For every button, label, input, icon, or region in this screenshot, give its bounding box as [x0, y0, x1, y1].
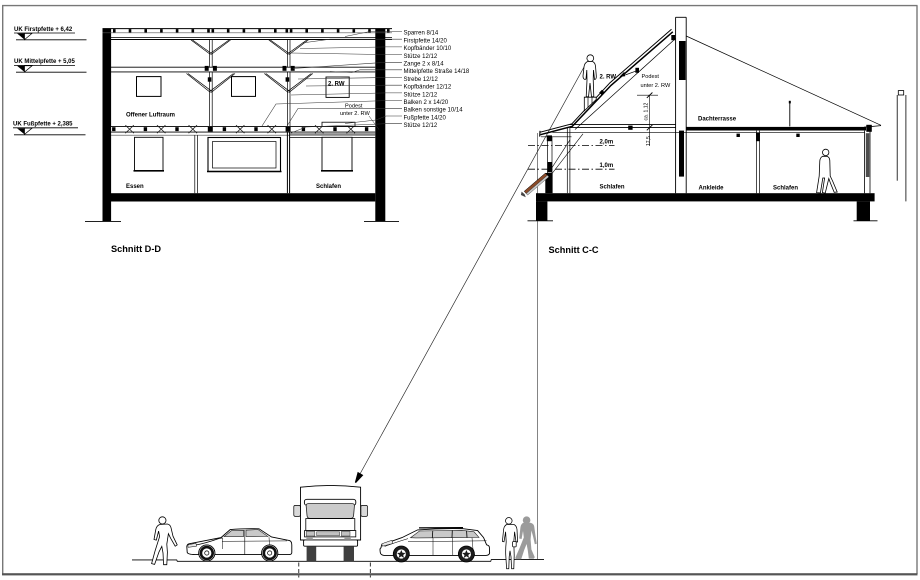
- svg-text:Fußpfette 14/20: Fußpfette 14/20: [404, 115, 447, 121]
- svg-text:Podest: Podest: [642, 74, 660, 80]
- svg-text:UK Firstpfette + 6,42: UK Firstpfette + 6,42: [14, 27, 73, 33]
- svg-text:2. RW: 2. RW: [328, 82, 345, 88]
- svg-text:Offener Luftraum: Offener Luftraum: [126, 113, 175, 119]
- svg-text:Kopfbänder 12/12: Kopfbänder 12/12: [404, 85, 452, 91]
- svg-text:Stütze 12/12: Stütze 12/12: [404, 123, 438, 129]
- svg-text:UK Mittelpfette + 5,05: UK Mittelpfette + 5,05: [14, 59, 76, 65]
- svg-text:unter 2. RW: unter 2. RW: [641, 83, 671, 89]
- svg-text:17,5: 17,5: [646, 136, 652, 146]
- svg-text:unter 2. RW: unter 2. RW: [340, 111, 370, 117]
- svg-text:ca. 1,12: ca. 1,12: [644, 102, 650, 120]
- svg-text:Schlafen: Schlafen: [773, 185, 798, 191]
- svg-text:Stütze 12/12: Stütze 12/12: [404, 92, 438, 98]
- svg-text:Balken sonstige 10/14: Balken sonstige 10/14: [404, 108, 464, 114]
- svg-text:Kopfbänder 10/10: Kopfbänder 10/10: [404, 46, 452, 52]
- svg-text:Firstpfette 14/20: Firstpfette 14/20: [404, 38, 448, 44]
- svg-text:Strebe 12/12: Strebe 12/12: [404, 77, 439, 83]
- svg-text:Stütze 12/12: Stütze 12/12: [404, 54, 438, 60]
- svg-text:Balken 2 x 14/20: Balken 2 x 14/20: [404, 100, 449, 106]
- svg-text:Schnitt D-D: Schnitt D-D: [111, 244, 161, 254]
- svg-text:Dachterrasse: Dachterrasse: [698, 116, 737, 122]
- svg-text:Zange 2 x 8/14: Zange 2 x 8/14: [404, 62, 445, 68]
- svg-text:Schlafen: Schlafen: [316, 184, 341, 190]
- svg-text:Ankleide: Ankleide: [699, 185, 725, 191]
- svg-text:2. RW: 2. RW: [600, 74, 617, 80]
- svg-text:UK Fußpfette + 2,385: UK Fußpfette + 2,385: [13, 122, 73, 128]
- svg-text:Schnitt C-C: Schnitt C-C: [549, 245, 599, 255]
- svg-text:Mittelpfette Straße 14/18: Mittelpfette Straße 14/18: [404, 69, 470, 75]
- svg-text:1,0m: 1,0m: [600, 163, 614, 169]
- svg-text:Schlafen: Schlafen: [600, 184, 625, 190]
- svg-text:Essen: Essen: [126, 184, 144, 190]
- svg-text:Sparren 8/14: Sparren 8/14: [404, 31, 439, 37]
- svg-text:2,0m: 2,0m: [600, 139, 614, 145]
